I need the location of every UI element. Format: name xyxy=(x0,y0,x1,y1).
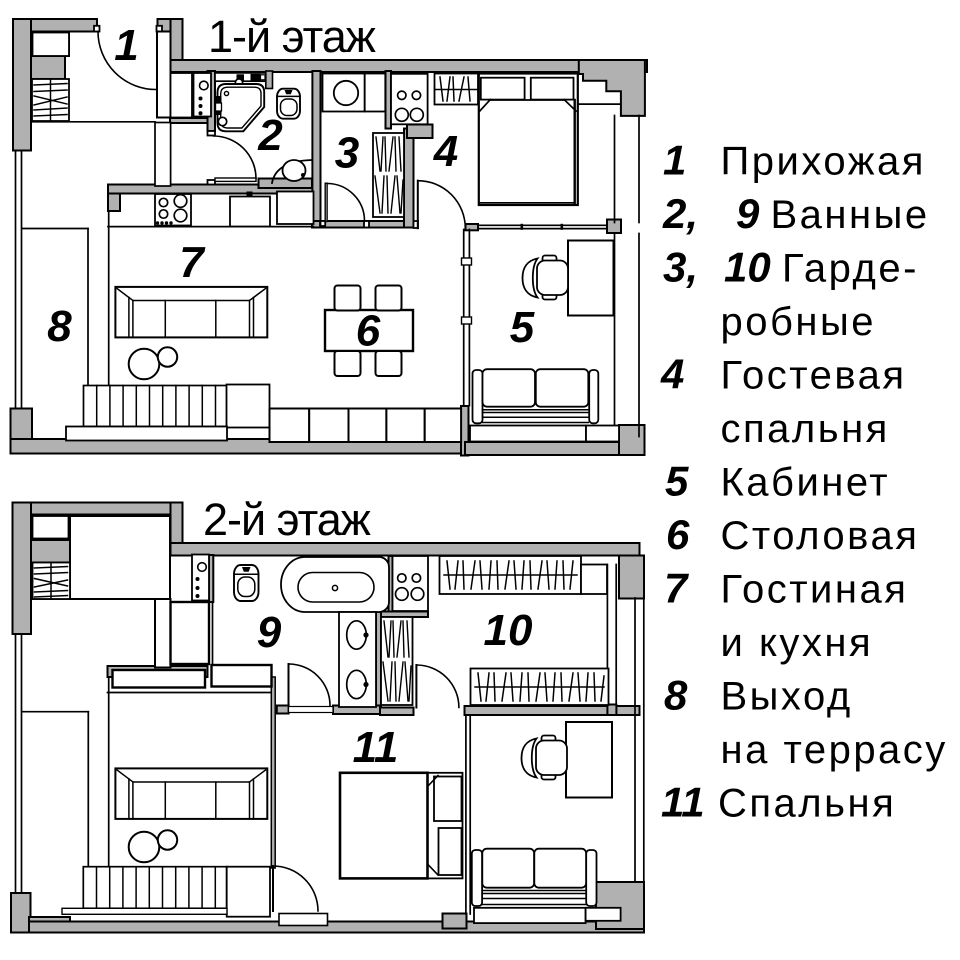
svg-text:2,: 2, xyxy=(662,190,698,237)
svg-text:2: 2 xyxy=(257,111,283,160)
svg-text:спальня: спальня xyxy=(721,407,890,451)
svg-text:1-й этаж: 1-й этаж xyxy=(208,11,376,62)
svg-text:Прихожая: Прихожая xyxy=(721,140,926,184)
svg-text:1: 1 xyxy=(114,21,138,70)
svg-text:Спальня: Спальня xyxy=(718,782,896,826)
svg-text:8: 8 xyxy=(664,672,688,719)
svg-text:робные: робные xyxy=(721,300,877,344)
svg-text:Кабинет: Кабинет xyxy=(721,461,891,505)
svg-text:11: 11 xyxy=(661,779,705,826)
svg-text:Столовая: Столовая xyxy=(721,514,920,558)
svg-text:5: 5 xyxy=(665,458,689,505)
svg-text:6: 6 xyxy=(666,511,690,558)
svg-text:8: 8 xyxy=(47,302,72,351)
svg-text:на террасу: на террасу xyxy=(721,728,948,772)
svg-text:Выход: Выход xyxy=(721,675,853,719)
svg-text:Гарде-: Гарде- xyxy=(782,247,919,291)
svg-text:9: 9 xyxy=(736,190,760,237)
svg-text:7: 7 xyxy=(179,238,206,287)
svg-text:4: 4 xyxy=(433,127,458,176)
svg-text:7: 7 xyxy=(664,565,689,612)
svg-text:Гостевая: Гостевая xyxy=(721,354,907,398)
svg-text:Ванные: Ванные xyxy=(771,193,930,237)
svg-text:6: 6 xyxy=(356,307,381,356)
svg-text:1: 1 xyxy=(663,137,686,184)
svg-text:и кухня: и кухня xyxy=(721,621,874,665)
svg-text:Гостиная: Гостиная xyxy=(721,568,909,612)
svg-text:10: 10 xyxy=(724,244,771,291)
svg-text:9: 9 xyxy=(257,608,282,657)
svg-text:11: 11 xyxy=(353,723,399,772)
svg-text:10: 10 xyxy=(484,606,533,655)
svg-text:4: 4 xyxy=(660,351,684,398)
svg-text:3,: 3, xyxy=(663,244,698,291)
svg-text:2-й этаж: 2-й этаж xyxy=(203,494,371,545)
svg-text:5: 5 xyxy=(510,303,535,352)
svg-text:3: 3 xyxy=(335,129,359,178)
